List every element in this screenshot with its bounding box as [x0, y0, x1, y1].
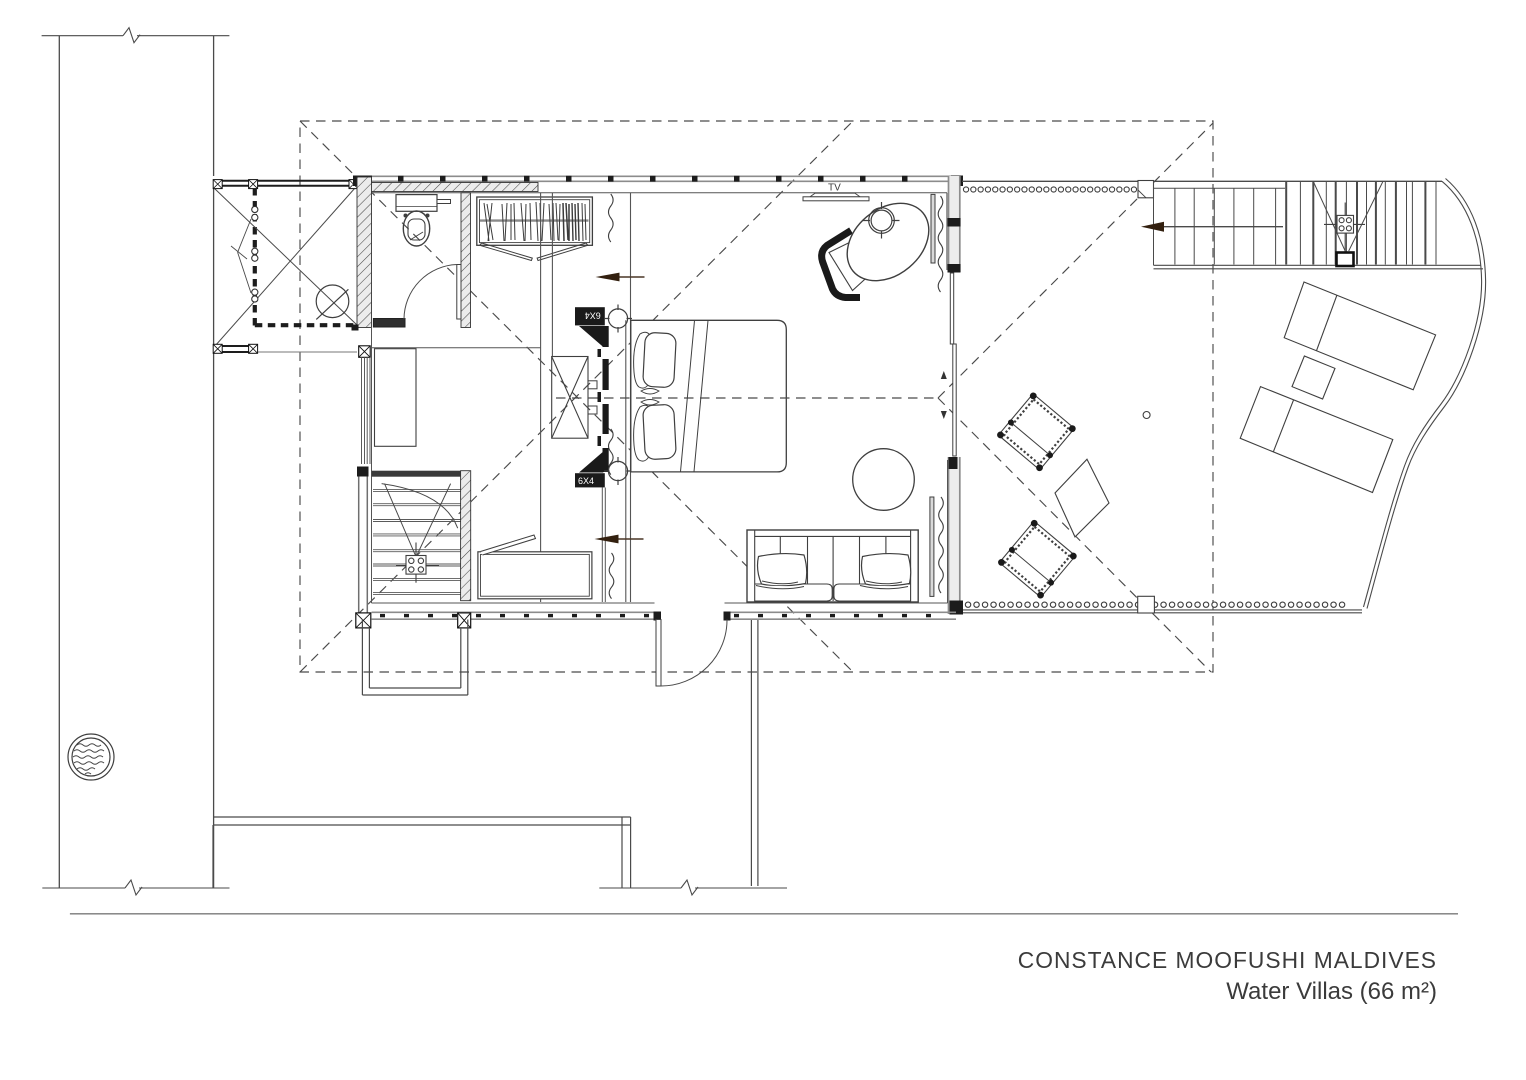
svg-text:Water Villas (66 m²): Water Villas (66 m²): [1226, 978, 1437, 1005]
svg-text:TV: TV: [828, 183, 841, 194]
svg-text:CONSTANCE MOOFUSHI MALDIVES: CONSTANCE MOOFUSHI MALDIVES: [1018, 947, 1437, 973]
svg-text:6X4: 6X4: [585, 311, 601, 321]
svg-text:6X4: 6X4: [578, 476, 594, 486]
